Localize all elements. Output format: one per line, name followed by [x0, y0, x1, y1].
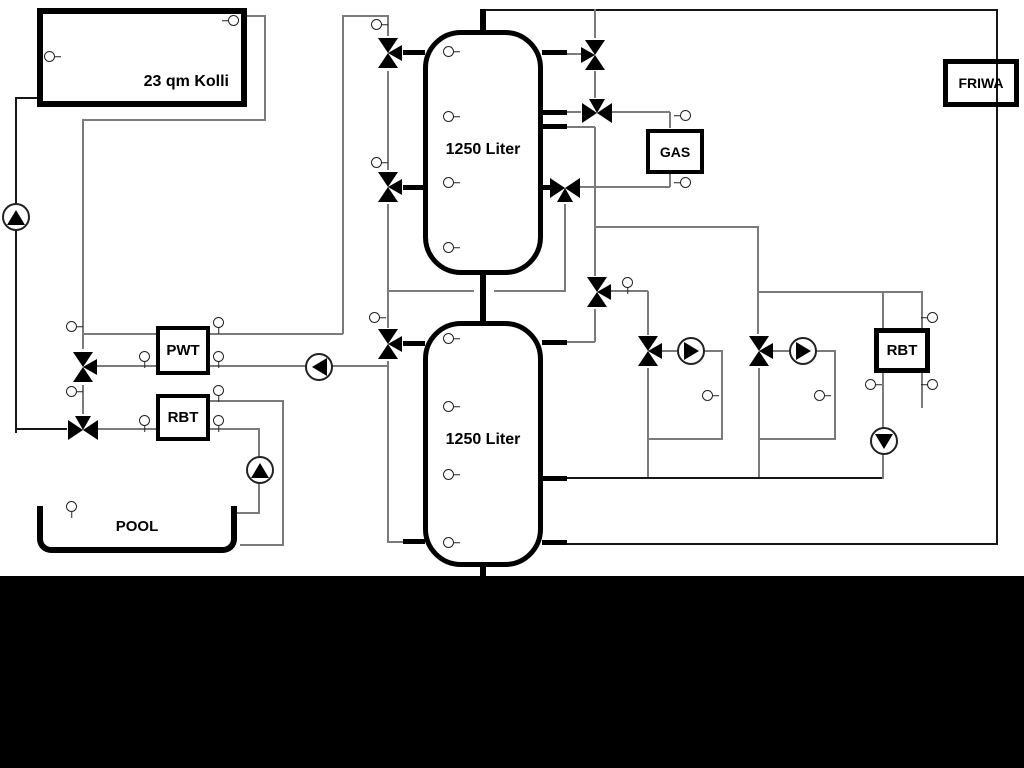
solar-pump — [2, 203, 30, 231]
solar-collector-label: 23 qm Kolli — [144, 73, 229, 91]
pump-direction-icon — [796, 342, 811, 360]
pipe — [594, 127, 596, 276]
tank-port — [403, 539, 425, 544]
pipe — [882, 291, 884, 329]
pipe — [387, 71, 389, 170]
temperature-sensor — [371, 19, 382, 30]
tank-temperature-sensor — [443, 111, 454, 122]
pipe — [704, 350, 722, 352]
pump-direction-icon — [7, 210, 25, 225]
pool-pump — [246, 456, 274, 484]
pipe — [258, 483, 260, 514]
pipe — [647, 438, 722, 440]
temperature-sensor — [66, 386, 77, 397]
pipe — [669, 112, 671, 128]
tank-temperature-sensor — [443, 46, 454, 57]
temperature-sensor — [927, 379, 938, 390]
pipe — [15, 97, 17, 433]
pump-direction-icon — [251, 463, 269, 478]
temperature-sensor — [927, 312, 938, 323]
pipe — [564, 204, 566, 292]
tank-port — [542, 124, 567, 129]
pipe — [240, 544, 284, 546]
pipe — [258, 428, 260, 458]
temperature-sensor — [139, 351, 150, 362]
pipe — [236, 512, 260, 514]
pool-heat-exchanger: PWT — [156, 326, 210, 375]
tank-port — [403, 185, 425, 190]
pipe — [594, 9, 596, 38]
pipe — [387, 15, 389, 36]
pipe — [647, 368, 649, 479]
buffer-tank-lower-label: 1250 Liter — [428, 431, 538, 449]
pipe — [82, 385, 84, 414]
heating-mixing-valve — [581, 274, 613, 310]
temperature-sensor — [139, 415, 150, 426]
pipe — [247, 15, 265, 17]
circuit1-mixing-valve — [632, 333, 664, 369]
pipe — [209, 428, 259, 430]
tank-port — [542, 540, 567, 545]
tank-temperature-sensor — [443, 537, 454, 548]
solar-tank-upper-valve — [372, 35, 404, 71]
temperature-sensor — [680, 110, 691, 121]
pipe — [757, 291, 922, 293]
pipe — [209, 333, 343, 335]
gas-boiler-label: GAS — [660, 144, 690, 160]
pipe — [209, 400, 284, 402]
footer-black-band — [0, 576, 1024, 768]
rbt-mixing-valve — [65, 414, 101, 446]
temperature-sensor — [369, 312, 380, 323]
pipe — [264, 15, 266, 121]
pipe — [610, 290, 648, 292]
pwt-pump — [305, 353, 333, 381]
temperature-sensor — [814, 390, 825, 401]
temperature-sensor — [213, 415, 224, 426]
pwt-mixing-valve — [67, 349, 99, 385]
tank-port — [403, 50, 425, 55]
pipe — [758, 368, 760, 479]
tank-port — [542, 476, 567, 481]
gas-flow-valve — [579, 97, 615, 129]
heating-return-unit-label: RBT — [887, 342, 918, 359]
pipe — [594, 71, 596, 98]
pipe — [387, 541, 404, 543]
temperature-sensor — [702, 390, 713, 401]
gas-return-valve — [547, 172, 583, 204]
temperature-sensor — [66, 501, 77, 512]
pipe — [566, 477, 884, 479]
circuit1-pump — [677, 337, 705, 365]
solar-tank-lower-valve — [372, 169, 404, 205]
pipe — [97, 365, 158, 367]
pipe — [209, 365, 389, 367]
buffer-tank-upper: 1250 Liter — [423, 30, 543, 275]
tank-port — [403, 341, 425, 346]
pool-heat-exchanger-label: PWT — [166, 342, 199, 359]
pipe — [758, 438, 835, 440]
temperature-sensor — [213, 317, 224, 328]
pipe — [647, 291, 649, 335]
pipe — [566, 543, 997, 545]
temperature-sensor — [66, 321, 77, 332]
tank-top-valve — [579, 37, 611, 73]
pipe — [82, 119, 84, 349]
pipe — [594, 309, 596, 342]
solar-collector: 23 qm Kolli — [37, 8, 247, 107]
pipe — [757, 226, 759, 334]
fresh-water-module: FRIWA — [943, 59, 1019, 107]
pipe — [97, 428, 158, 430]
hydraulic-schematic-canvas: 23 qm Kolli 1250 Liter 1250 Liter GAS FR… — [0, 0, 1024, 768]
pipe — [342, 16, 344, 334]
buffer-tank-lower: 1250 Liter — [423, 321, 543, 567]
pipe — [612, 111, 670, 113]
pump-direction-icon — [875, 434, 893, 449]
buffer-tank-upper-label: 1250 Liter — [428, 141, 538, 159]
pool-return-unit-label: RBT — [168, 409, 199, 426]
tank2-charge-valve — [372, 326, 404, 362]
pipe — [387, 361, 389, 543]
tank-connector-pipe — [480, 273, 486, 324]
temperature-sensor — [622, 277, 633, 288]
pipe — [83, 119, 266, 121]
temperature-sensor — [865, 379, 876, 390]
tank-temperature-sensor — [443, 469, 454, 480]
tank-port — [542, 110, 567, 115]
pipe — [483, 9, 998, 11]
pipe — [594, 226, 758, 228]
tank-temperature-sensor — [443, 242, 454, 253]
pipe — [83, 333, 158, 335]
tank-port — [542, 340, 567, 345]
pipe — [721, 350, 723, 440]
tank-temperature-sensor — [443, 333, 454, 344]
tank-temperature-sensor — [443, 401, 454, 412]
heating-return-unit: RBT — [874, 328, 930, 373]
gas-boiler: GAS — [646, 129, 704, 174]
temperature-sensor — [371, 157, 382, 168]
pool-return-unit: RBT — [156, 394, 210, 441]
rbt-pump — [870, 427, 898, 455]
pipe — [494, 290, 565, 292]
fresh-water-module-label: FRIWA — [958, 75, 1003, 91]
pipe — [15, 428, 67, 430]
pipe — [342, 15, 388, 17]
temperature-sensor — [228, 15, 239, 26]
circuit2-pump — [789, 337, 817, 365]
temperature-sensor — [213, 385, 224, 396]
temperature-sensor — [213, 351, 224, 362]
pump-direction-icon — [312, 358, 327, 376]
pipe — [882, 373, 884, 479]
pipe — [816, 350, 835, 352]
circuit2-mixing-valve — [743, 333, 775, 369]
pipe — [282, 400, 284, 546]
tank-port — [542, 50, 567, 55]
pool-basin: POOL — [37, 506, 237, 553]
temperature-sensor — [680, 177, 691, 188]
pool-label: POOL — [116, 518, 159, 535]
tank-temperature-sensor — [443, 177, 454, 188]
pipe — [566, 341, 595, 343]
pipe — [669, 172, 671, 187]
pipe — [834, 350, 836, 440]
pump-direction-icon — [684, 342, 699, 360]
pipe — [387, 204, 389, 328]
temperature-sensor — [44, 51, 55, 62]
pipe — [387, 290, 474, 292]
